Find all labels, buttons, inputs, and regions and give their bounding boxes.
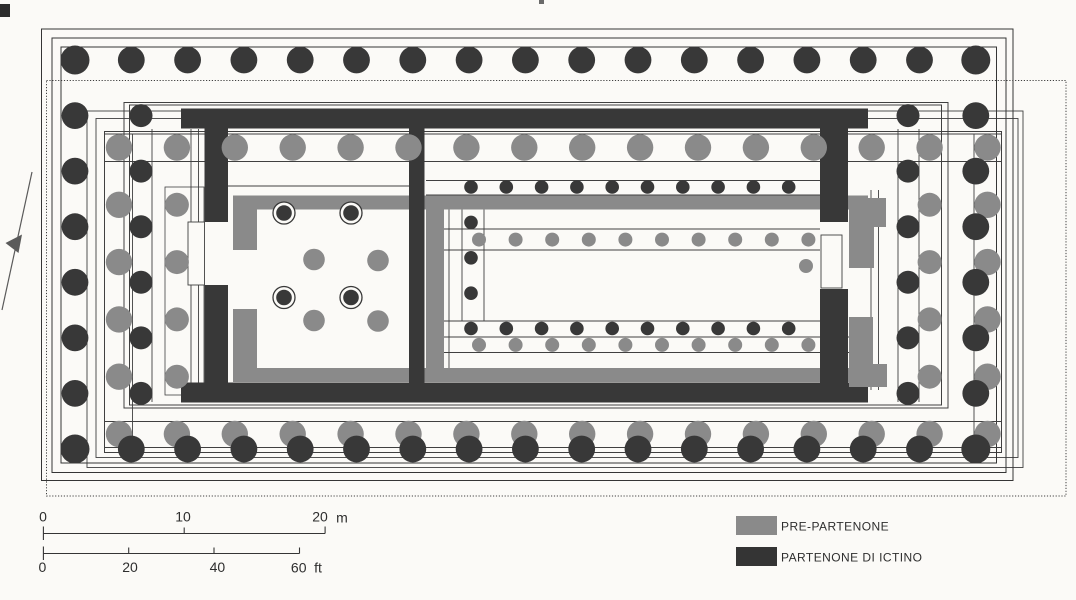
svg-text:20: 20 <box>122 559 138 575</box>
svg-text:PRE-PARTENONE: PRE-PARTENONE <box>781 520 889 534</box>
svg-text:20: 20 <box>312 509 328 525</box>
svg-text:m: m <box>336 510 348 526</box>
svg-text:60: 60 <box>291 560 307 576</box>
svg-text:PARTENONE DI ICTINO: PARTENONE DI ICTINO <box>781 551 922 565</box>
svg-text:0: 0 <box>39 509 47 525</box>
svg-text:0: 0 <box>39 559 47 575</box>
svg-text:ft: ft <box>314 560 322 576</box>
svg-text:40: 40 <box>210 559 226 575</box>
svg-text:10: 10 <box>175 509 191 525</box>
